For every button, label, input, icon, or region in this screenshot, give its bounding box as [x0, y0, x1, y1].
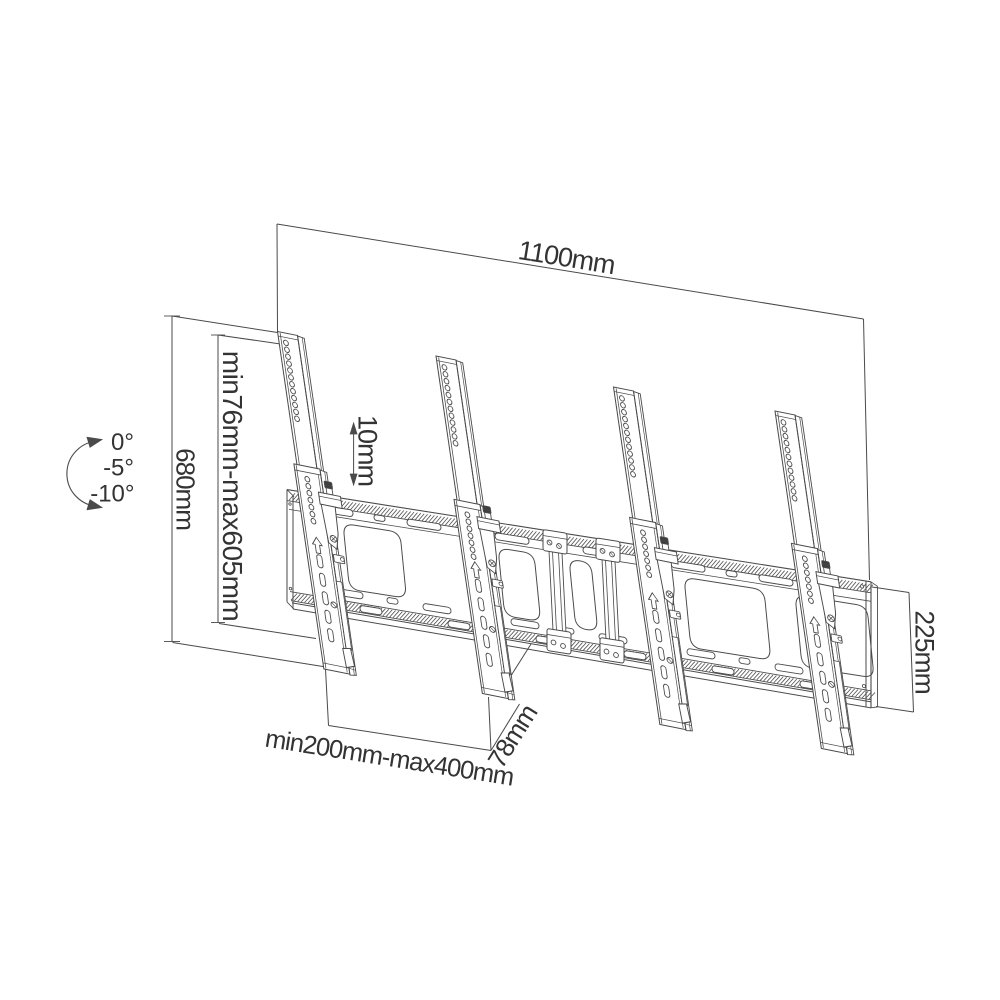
svg-text:10mm: 10mm	[353, 415, 383, 486]
svg-text:225mm: 225mm	[910, 610, 940, 693]
svg-text:-5°: -5°	[103, 455, 134, 482]
svg-text:680mm: 680mm	[171, 448, 201, 530]
svg-text:-10°: -10°	[90, 481, 134, 508]
svg-text:min76mm-max605mm: min76mm-max605mm	[217, 351, 248, 622]
svg-text:0°: 0°	[111, 429, 134, 456]
